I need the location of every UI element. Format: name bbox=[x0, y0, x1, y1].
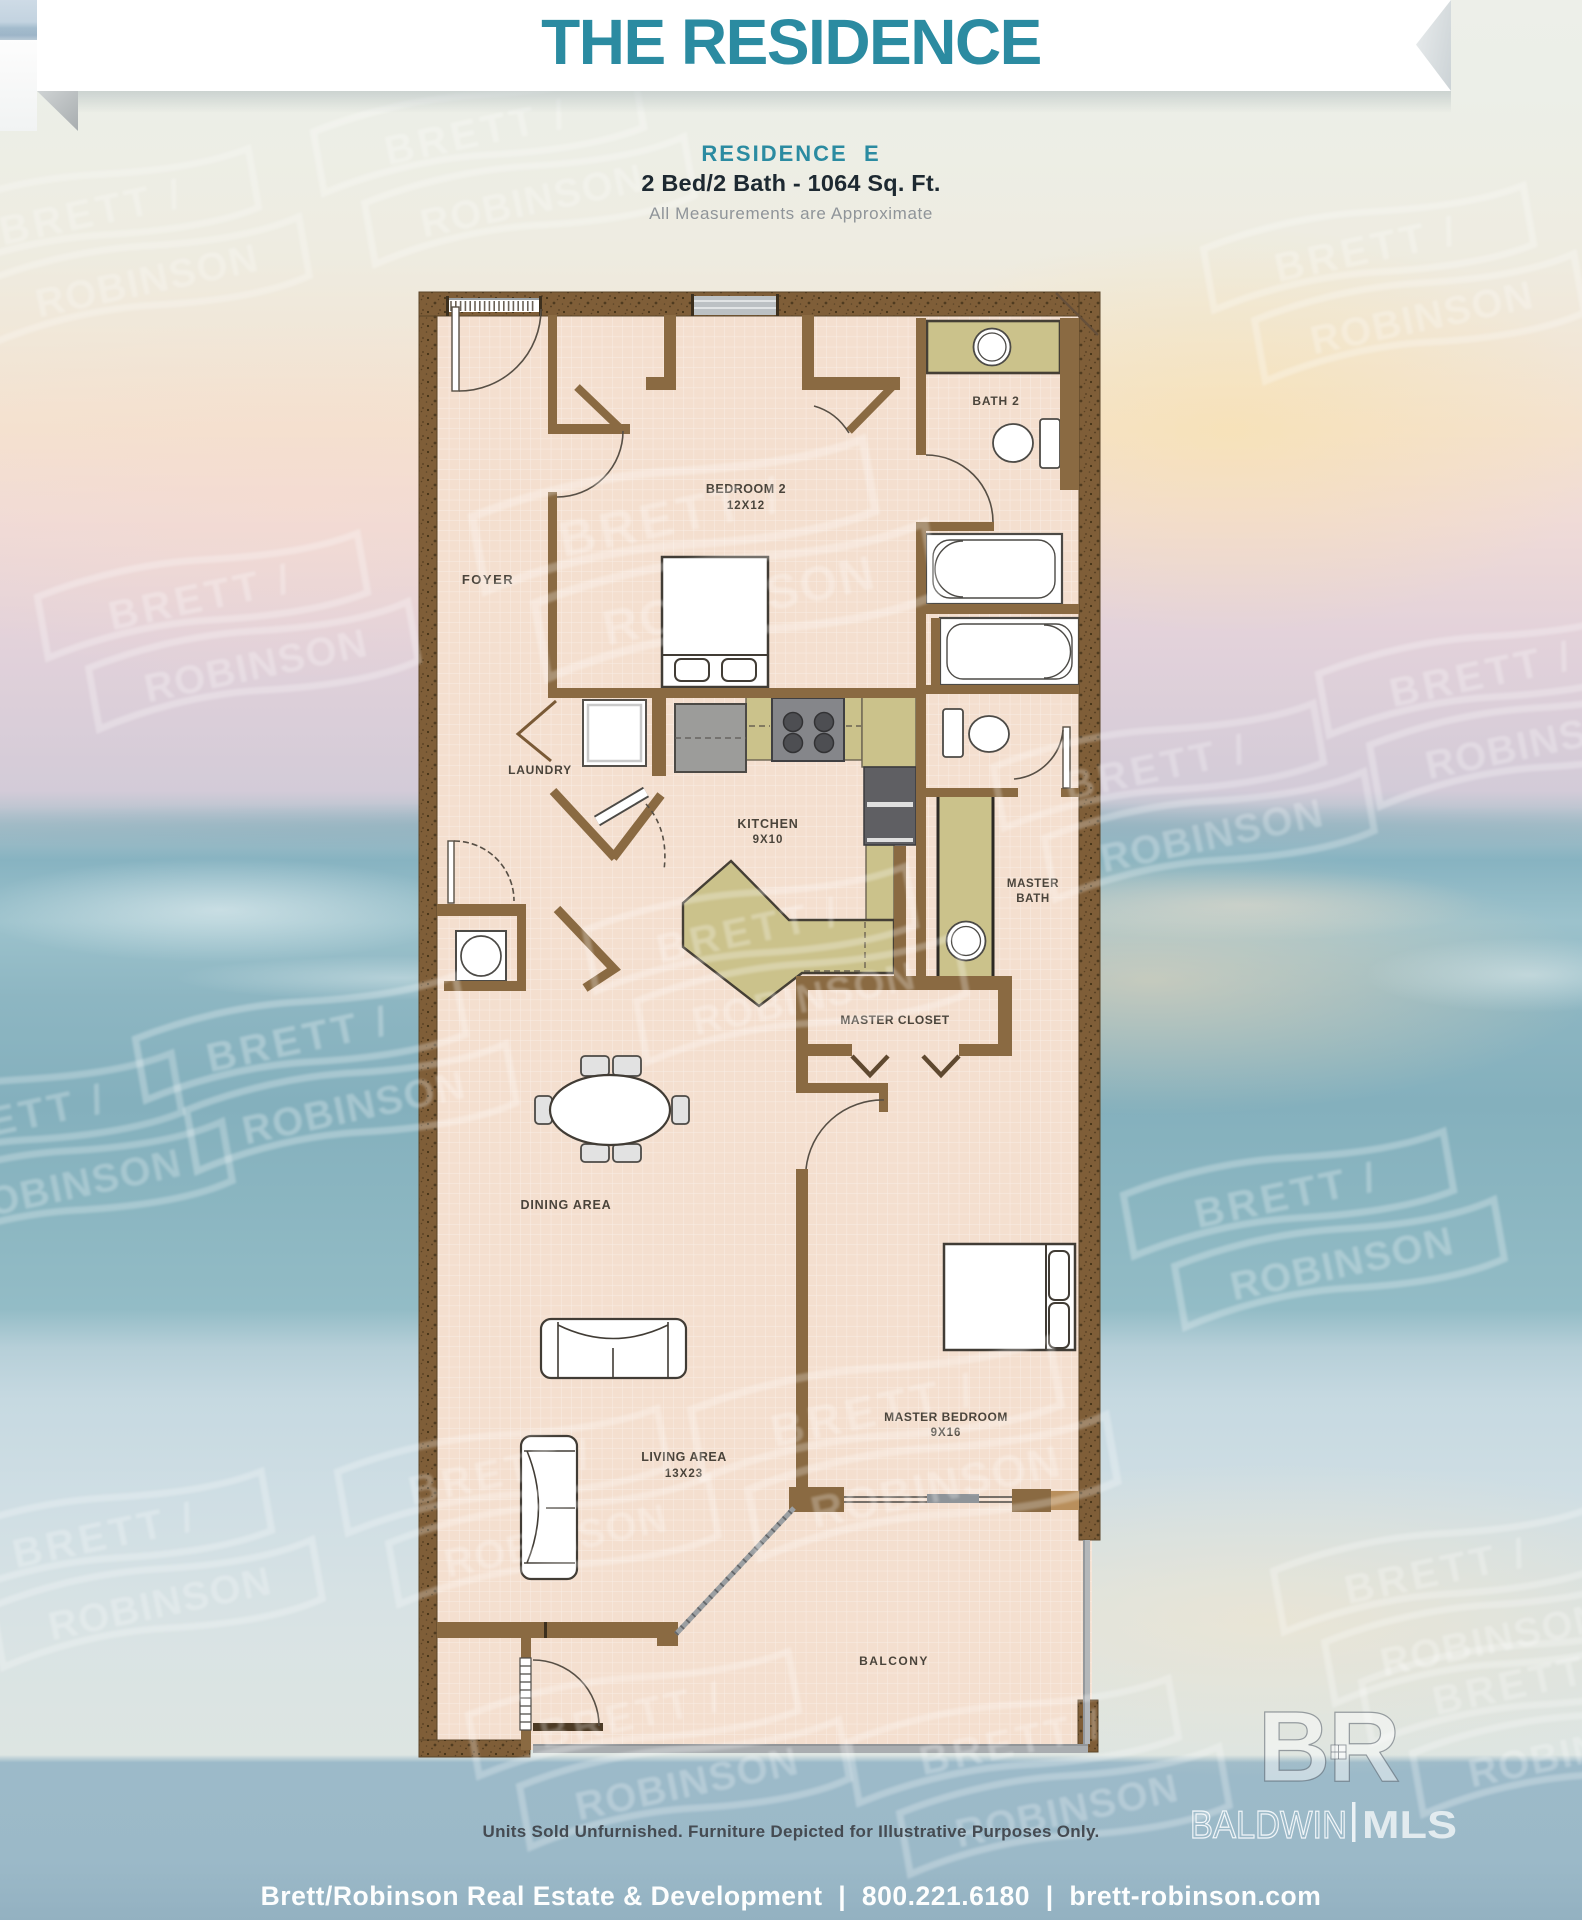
svg-text:BALCONY: BALCONY bbox=[859, 1654, 929, 1668]
svg-text:BR: BR bbox=[1258, 1691, 1399, 1803]
svg-text:LIVING AREA: LIVING AREA bbox=[641, 1450, 727, 1464]
svg-text:LAUNDRY: LAUNDRY bbox=[508, 763, 572, 777]
svg-text:BATH 2: BATH 2 bbox=[972, 394, 1019, 408]
svg-text:KITCHEN: KITCHEN bbox=[737, 817, 798, 831]
svg-text:DINING AREA: DINING AREA bbox=[521, 1198, 612, 1212]
svg-text:BATH: BATH bbox=[1016, 893, 1050, 905]
svg-text:9X10: 9X10 bbox=[753, 834, 784, 846]
